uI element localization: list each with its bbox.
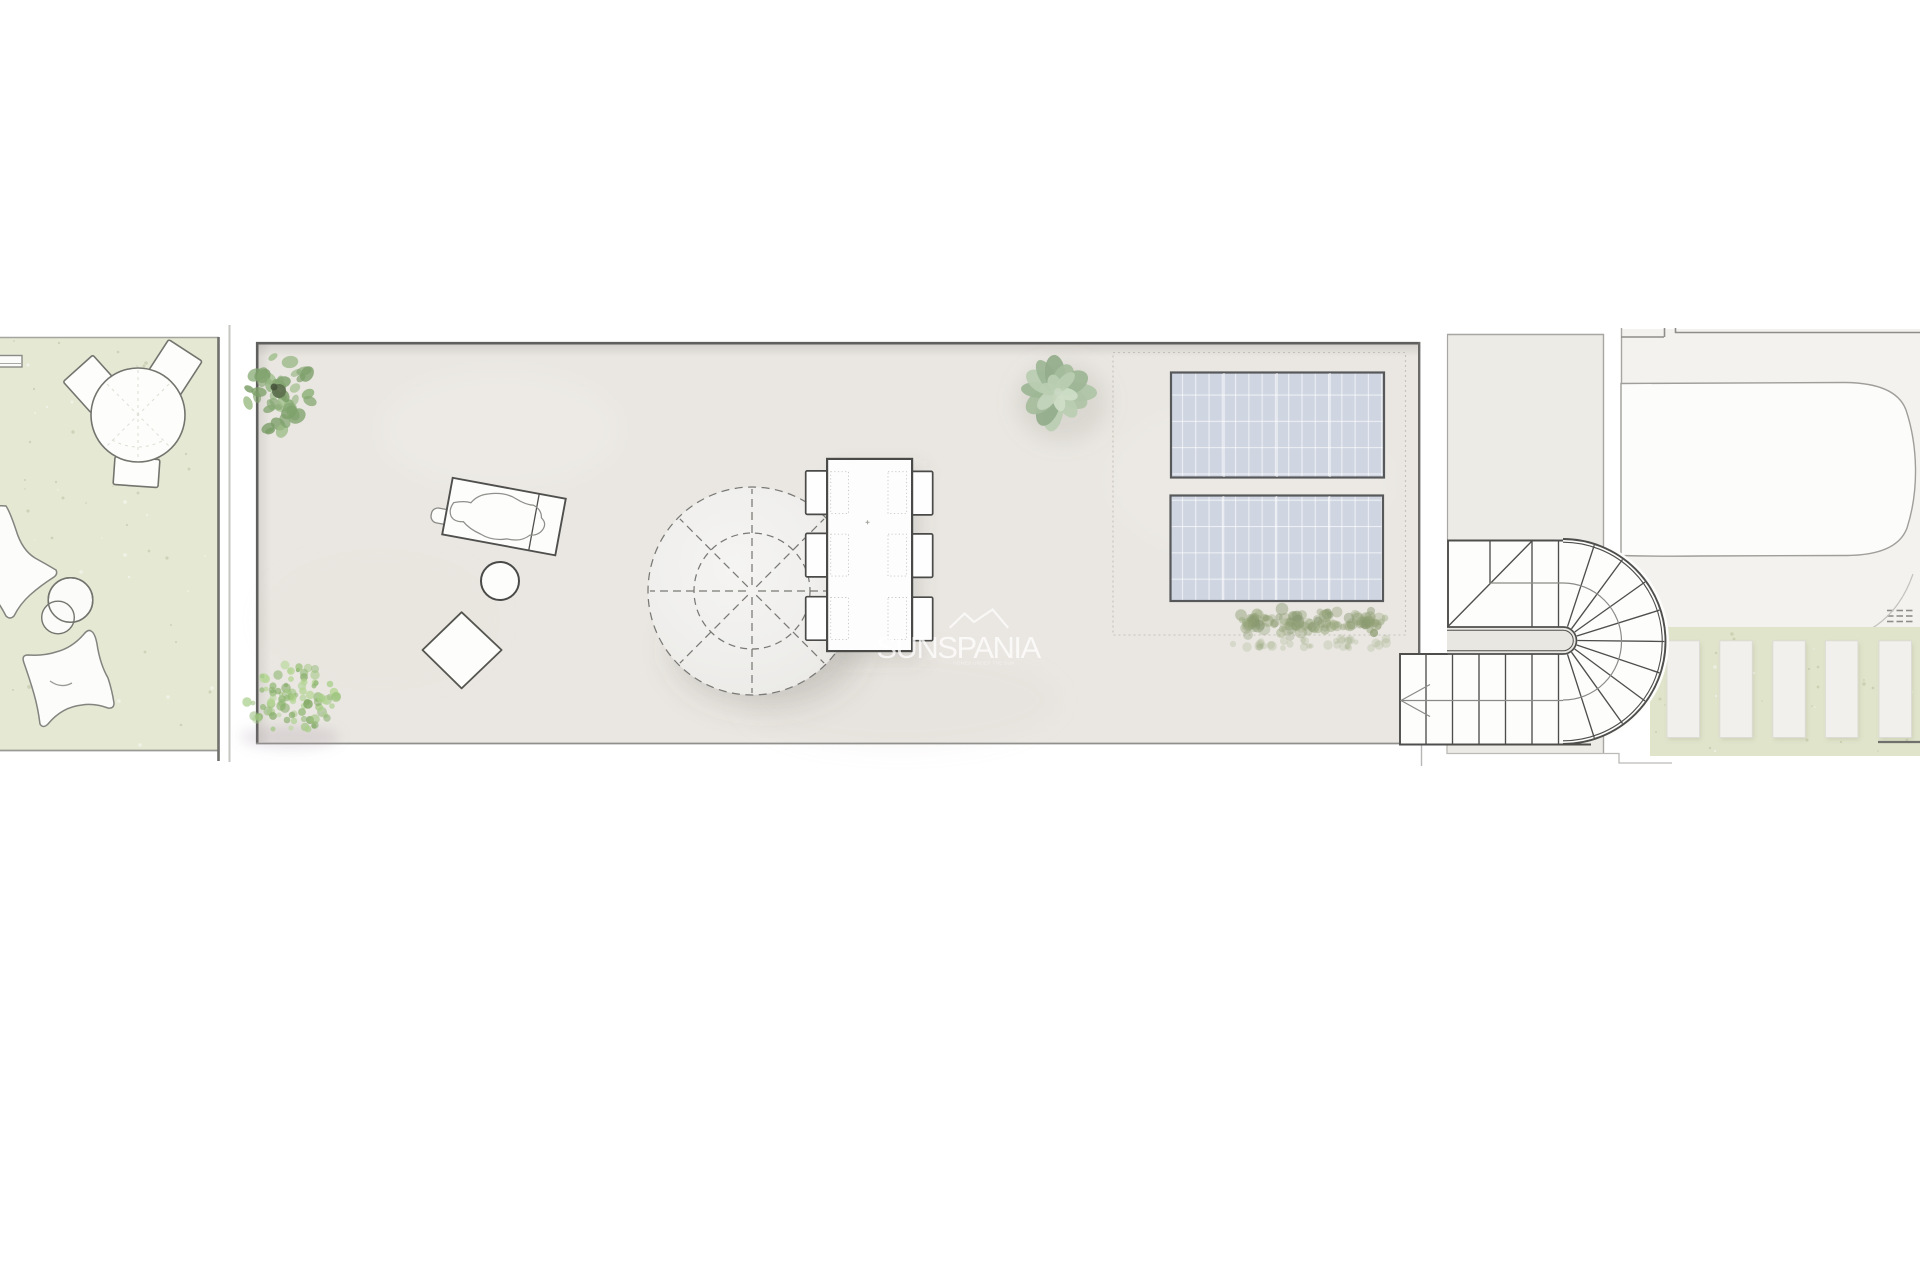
svg-text:HOMES UNDER THE SUN: HOMES UNDER THE SUN (953, 661, 1015, 666)
